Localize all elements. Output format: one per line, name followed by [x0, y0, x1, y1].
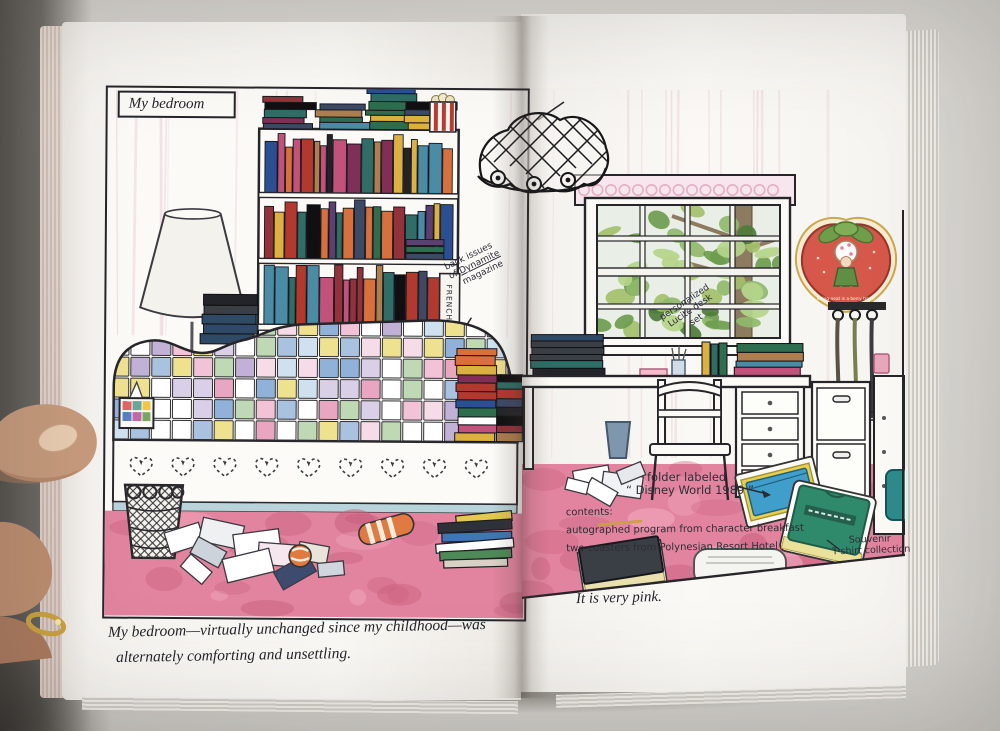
book-stack: [406, 239, 444, 245]
book-spine: [404, 148, 411, 193]
quilt-square: [319, 400, 338, 419]
book-spine: [307, 266, 319, 325]
book-spine: [329, 202, 336, 259]
quilt-square: [110, 315, 129, 334]
book-spine: [418, 271, 427, 325]
book-pile: [497, 425, 523, 432]
book-spine: [314, 141, 320, 193]
right-page-caption: It is very pink.: [576, 589, 662, 608]
quilt-square: [382, 338, 401, 357]
book-stack: [263, 96, 303, 102]
quilt-square: [361, 422, 380, 441]
desk-leg: [524, 387, 533, 469]
book-spine: [285, 147, 292, 193]
book-spine: [264, 265, 275, 324]
quilt-square: [340, 338, 359, 357]
book-spine: [274, 212, 284, 258]
book-spine: [289, 278, 296, 325]
carpet-blotch: [349, 589, 366, 605]
desk-book-stack: [734, 367, 800, 376]
quilt-square: [298, 358, 317, 377]
strawberry-motto-text: Being neat is a berry treat!: [817, 296, 876, 302]
finger: [0, 522, 52, 616]
quilt-square: [235, 400, 254, 419]
book-stack: [320, 117, 363, 123]
folder-annotation: folder labeled “ Disney World 1989 ”: [626, 471, 754, 497]
book-spine: [429, 143, 442, 193]
wall-streak: [133, 90, 137, 335]
book-spine: [350, 279, 357, 325]
carpet-blotch: [522, 468, 566, 491]
book-stack: [202, 314, 256, 324]
quilt-square: [340, 401, 359, 420]
book-spine: [298, 212, 307, 259]
desk-book-stack: [737, 344, 803, 353]
book-pile: [457, 365, 497, 375]
quilt-square: [172, 399, 191, 418]
book-spine: [357, 267, 363, 324]
quilt-square: [235, 421, 254, 440]
book-spine: [418, 146, 428, 194]
book-pile: [457, 348, 497, 355]
book-spine: [278, 134, 285, 193]
book-spine: [381, 140, 392, 193]
bedroom-illustration-panel: FRENCH A: [102, 86, 530, 622]
book-spine: [393, 135, 403, 194]
book-spine: [406, 272, 418, 325]
book-spine: [354, 200, 365, 259]
quilt-square: [319, 421, 338, 440]
book-spine: [395, 275, 406, 325]
contents-line3: two coasters from Polynesian Resort Hote…: [566, 538, 804, 558]
quilt-square: [424, 401, 443, 420]
quilt-square: [361, 359, 380, 378]
book-spine: [393, 207, 405, 259]
book-spine: [343, 208, 354, 259]
bedroom-drawing-left: FRENCH A: [104, 88, 527, 619]
quilt-square: [361, 380, 380, 399]
book-stack: [203, 324, 257, 334]
quilt-square: [256, 379, 275, 398]
book-spine: [265, 141, 278, 192]
rattan-pendant-lamp: [468, 100, 618, 205]
book-stack: [367, 88, 415, 94]
desk-book-stack: [530, 354, 602, 360]
book-stack: [265, 102, 316, 109]
book-spine: [285, 202, 297, 259]
quilt-square: [256, 358, 275, 377]
file-cabinet: [812, 382, 870, 500]
quilt-square: [193, 379, 212, 398]
quilt-square: [319, 379, 338, 398]
book-stack: [263, 117, 304, 123]
quilt-square: [193, 420, 212, 439]
desk-book-stack: [737, 352, 803, 361]
quilt-square: [257, 337, 276, 356]
desk-book-stack: [736, 361, 802, 367]
book-spine: [264, 206, 273, 258]
floor-book: [444, 558, 508, 568]
book-pile: [456, 383, 496, 392]
photo-of-open-book: FRENCH A: [0, 0, 1000, 731]
book-stack: [320, 104, 365, 110]
book-spine: [320, 146, 326, 193]
book-pile: [497, 382, 523, 390]
quilt-square: [340, 422, 359, 441]
desk-book-stack: [532, 348, 604, 355]
quilt-square: [131, 357, 150, 376]
quilt-square: [340, 380, 359, 399]
quilt-square: [256, 421, 275, 440]
quilt-square: [277, 421, 296, 440]
quilt-square: [403, 380, 422, 399]
quilt-square: [298, 421, 317, 440]
quilt-square: [278, 337, 297, 356]
book-pile: [497, 389, 523, 399]
quilt-square: [403, 401, 422, 420]
quilt-square: [319, 359, 338, 378]
book-spine: [301, 139, 314, 193]
book-pile: [456, 400, 496, 408]
book-stack: [204, 305, 258, 314]
wall-streak: [115, 90, 119, 335]
book-spine: [321, 209, 329, 259]
book-pile: [458, 417, 498, 425]
book-spine: [363, 279, 375, 325]
quilt-square: [361, 338, 380, 357]
waste-bin: [606, 422, 630, 458]
book-spine: [361, 139, 373, 194]
quilt-square: [319, 338, 338, 357]
quilt-square: [256, 400, 275, 419]
contents-annotation: contents: autographed program from chara…: [566, 502, 804, 558]
quilt-square: [277, 358, 296, 377]
book-spine: [381, 211, 392, 259]
quilt-square: [214, 379, 233, 398]
book-pile: [497, 399, 523, 408]
book-pile: [458, 408, 498, 417]
quilt-square: [214, 400, 233, 419]
carpet-blotch: [531, 557, 550, 580]
desk-book-stack: [531, 335, 603, 341]
quilt-square: [403, 359, 422, 378]
book-spine: [443, 149, 453, 194]
book-stack: [320, 122, 370, 129]
book-stack: [204, 294, 258, 305]
desk-book-upright: [711, 344, 718, 376]
book-spine: [383, 272, 394, 325]
desk-book-upright: [702, 342, 710, 376]
quilt-square: [152, 378, 171, 397]
book-stack: [263, 123, 312, 129]
book-spine: [320, 277, 334, 324]
quilt-square: [382, 422, 401, 441]
book-pile: [496, 432, 522, 441]
quilt-square: [172, 420, 191, 439]
bookshelf-books: [200, 88, 457, 346]
quilt-square: [194, 358, 213, 377]
book-pile: [455, 356, 495, 366]
quilt-square: [403, 422, 422, 441]
quilt-square: [361, 401, 380, 420]
book-stack: [406, 246, 444, 252]
pencil-cup: [672, 360, 685, 377]
quilt-square: [382, 401, 401, 420]
book-stack: [371, 93, 417, 101]
quilt-square: [235, 379, 254, 398]
book-spine: [347, 144, 361, 193]
quilt-square: [214, 421, 233, 440]
book-spine: [296, 265, 307, 324]
pink-cup: [874, 354, 889, 373]
quilt-square: [152, 357, 171, 376]
quilt-square: [277, 400, 296, 419]
quilt-square: [424, 422, 443, 441]
book-pile: [458, 375, 498, 383]
hand-base: [0, 616, 52, 664]
desk-book-upright: [719, 343, 727, 376]
book-spine: [334, 265, 343, 325]
book-spine: [275, 267, 289, 325]
quilt-square: [173, 316, 192, 335]
book-pile: [497, 416, 523, 425]
bookshelf: FRENCH A: [200, 88, 461, 352]
quilt-square: [382, 380, 401, 399]
hand-holding-page: [0, 372, 112, 672]
book-spine: [373, 207, 381, 259]
book-stack: [264, 109, 306, 117]
quilt-square: [403, 338, 422, 357]
rolled-sock: [289, 545, 311, 567]
book-spine: [343, 280, 349, 325]
book-spine: [293, 139, 301, 193]
book-stack: [406, 253, 444, 259]
panel-title-box: My bedroom: [118, 91, 236, 119]
quilt-square: [299, 337, 318, 356]
quilt-square: [340, 359, 359, 378]
carpet-blotch: [866, 563, 905, 582]
book-spine: [365, 207, 372, 259]
book-spine: [327, 135, 333, 193]
quilt-square: [236, 358, 255, 377]
desk-book-stack: [531, 361, 603, 369]
paper-scrap: [317, 561, 344, 577]
character-dress: [834, 268, 858, 286]
quilt-square: [173, 357, 192, 376]
book-pile: [458, 425, 498, 433]
book-pile: [497, 407, 523, 416]
quilt-square: [215, 358, 234, 377]
quilt-square: [298, 400, 317, 419]
quilt-square: [173, 378, 192, 397]
quilt-square: [382, 359, 401, 378]
quilt-square: [277, 379, 296, 398]
book-page-edges-right: [906, 29, 939, 667]
folder-note-line2: “ Disney World 1989 ”: [626, 484, 754, 497]
quilt-square: [424, 338, 443, 357]
book-spine: [411, 140, 417, 194]
book-pile: [458, 391, 498, 400]
book-spine: [374, 142, 381, 193]
book-pile: [455, 433, 495, 442]
quilt-square: [424, 359, 443, 378]
quilt-square: [424, 380, 443, 399]
book-spine: [376, 266, 383, 325]
tshirt-annotation: Souvenir T-shirt collection: [832, 534, 911, 559]
strawberry-shortcake-wall-hanging: Being neat is a berry treat!: [796, 218, 896, 312]
desk-book-stack: [531, 341, 603, 348]
book-spine: [307, 205, 321, 259]
book-pile: [497, 375, 523, 382]
book-stack: [315, 110, 362, 117]
book-spine: [333, 140, 347, 193]
book-spine: [336, 213, 342, 259]
quilt-square: [193, 400, 212, 419]
panel-title-text: My bedroom: [129, 96, 205, 114]
popcorn-cup: [430, 93, 456, 132]
quilt-square: [298, 379, 317, 398]
